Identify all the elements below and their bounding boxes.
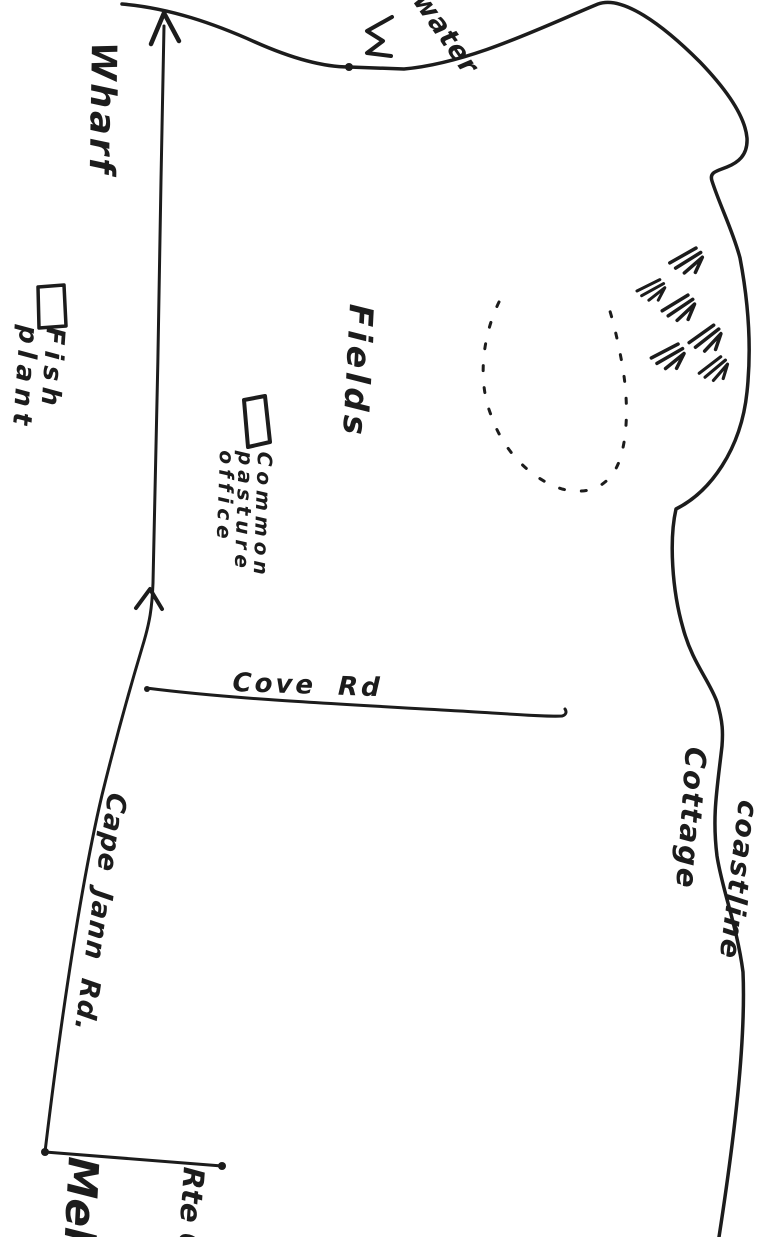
road-chevron-icon: [136, 589, 162, 609]
grass-tuft-icon: [650, 344, 685, 371]
marsh-dashed-outline: [483, 297, 626, 491]
grass-tufts: [636, 247, 731, 384]
hand-drawn-map: water Wharf Fish plant Fields Common pas…: [0, 0, 758, 1237]
shore-dot: [345, 63, 353, 71]
coastline-path: [122, 2, 749, 1237]
boundary-line-bottom: [45, 1152, 222, 1166]
pasture-office-building: [244, 396, 270, 447]
cove-road-path: [146, 688, 566, 716]
grass-tuft-icon: [660, 294, 697, 323]
map-ink-drawing: [0, 0, 758, 1237]
grass-tuft-icon: [696, 356, 731, 385]
grass-tuft-icon: [668, 247, 704, 275]
main-road-path: [45, 26, 164, 1152]
fish-plant-building: [38, 285, 66, 328]
grass-tuft-icon: [636, 279, 666, 302]
boundary-dot-left: [41, 1148, 49, 1156]
grass-tuft-icon: [686, 324, 724, 355]
wave-mark-icon: [367, 17, 392, 56]
boundary-dot-right: [218, 1162, 226, 1170]
cove-road-junction-dot: [144, 686, 150, 692]
